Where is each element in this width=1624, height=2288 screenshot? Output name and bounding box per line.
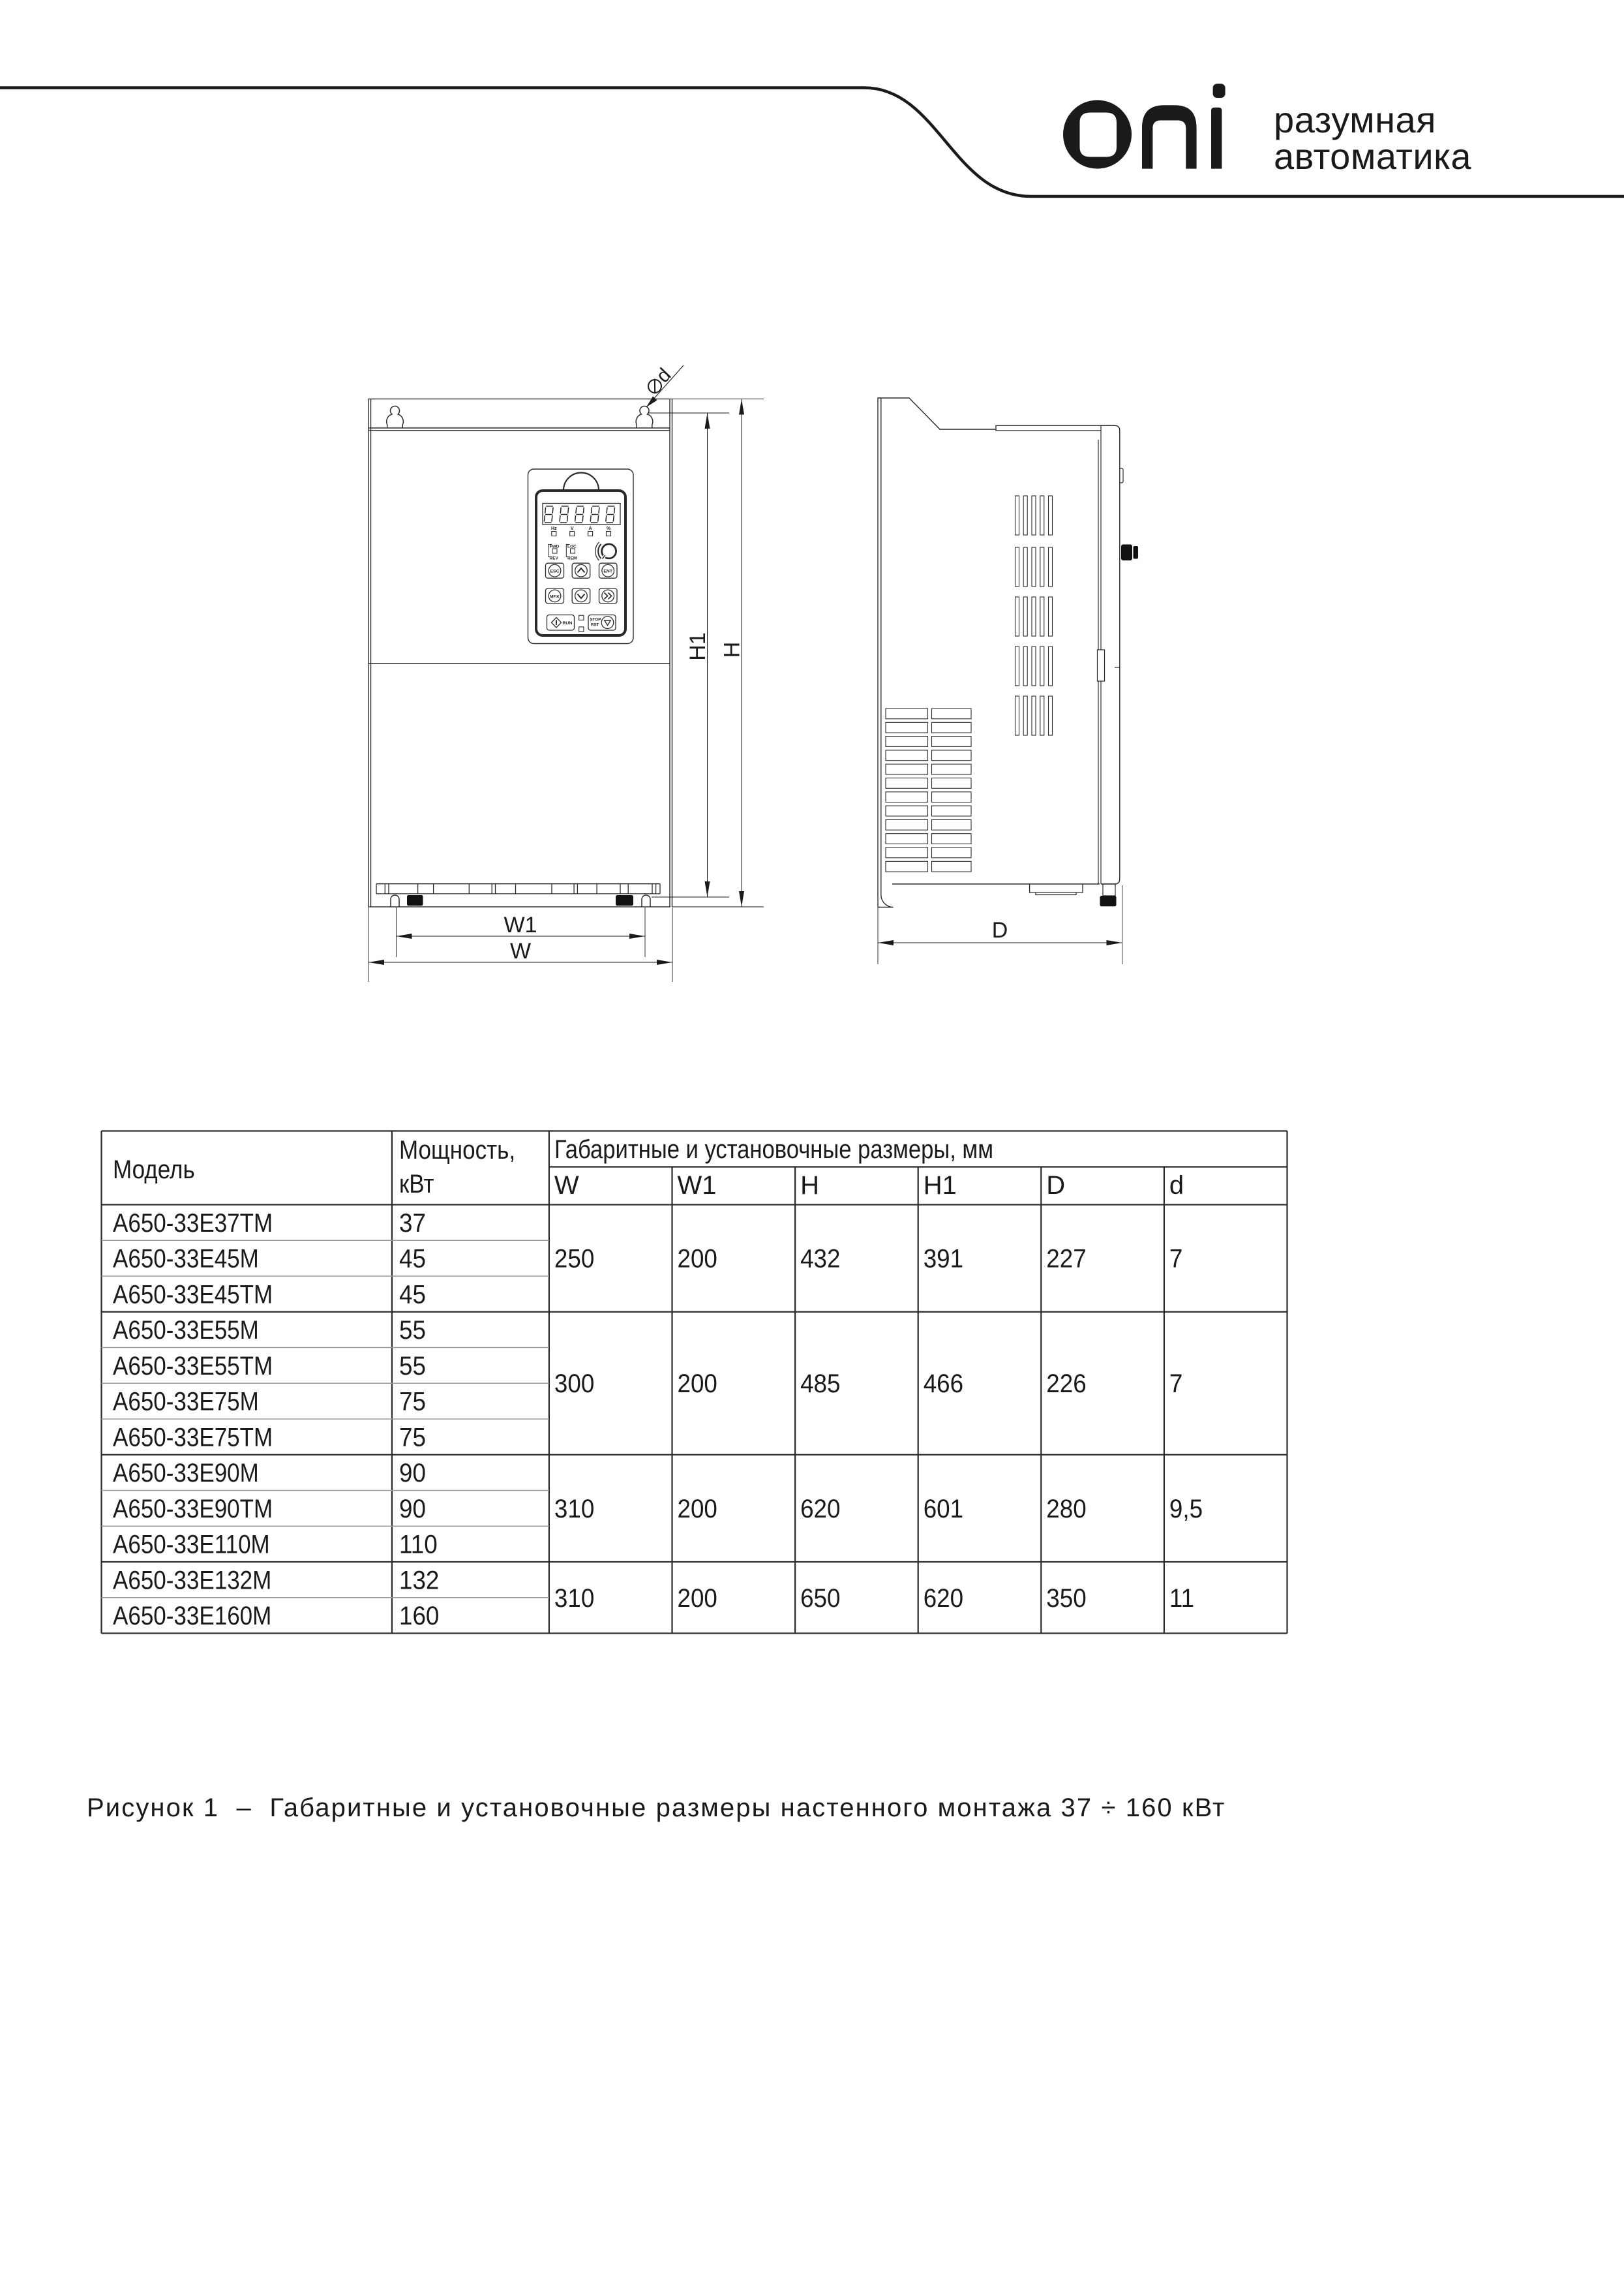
svg-text:160: 160 — [399, 1602, 439, 1630]
svg-text:FWD: FWD — [550, 545, 560, 549]
svg-text:%: % — [607, 526, 611, 531]
svg-text:280: 280 — [1046, 1495, 1086, 1523]
svg-text:H: H — [800, 1171, 819, 1200]
svg-text:автоматика: автоматика — [1274, 136, 1471, 177]
svg-text:Габаритные и установочные разм: Габаритные и установочные размеры, мм — [554, 1135, 993, 1164]
svg-text:601: 601 — [924, 1495, 963, 1523]
svg-text:9,5: 9,5 — [1169, 1495, 1203, 1523]
svg-text:432: 432 — [800, 1245, 840, 1274]
svg-text:110: 110 — [399, 1531, 438, 1559]
svg-text:650: 650 — [800, 1584, 840, 1613]
svg-text:ENT: ENT — [603, 570, 612, 574]
svg-text:A650-33E90TM: A650-33E90TM — [113, 1495, 273, 1523]
svg-text:200: 200 — [678, 1495, 717, 1523]
svg-text:7: 7 — [1169, 1369, 1183, 1398]
svg-text:RST: RST — [591, 623, 599, 628]
svg-text:226: 226 — [1046, 1369, 1086, 1398]
svg-text:A650-33E55M: A650-33E55M — [113, 1316, 259, 1345]
svg-text:90: 90 — [399, 1459, 426, 1487]
svg-text:кВт: кВт — [399, 1170, 434, 1198]
svg-text:H1: H1 — [924, 1171, 957, 1200]
svg-text:485: 485 — [800, 1369, 840, 1398]
svg-text:132: 132 — [399, 1566, 439, 1594]
svg-text:310: 310 — [554, 1495, 594, 1523]
svg-text:391: 391 — [924, 1245, 963, 1274]
svg-text:11: 11 — [1169, 1584, 1194, 1613]
svg-text:75: 75 — [399, 1388, 426, 1416]
svg-text:A650-33E37TM: A650-33E37TM — [113, 1209, 273, 1238]
svg-text:A650-33E160M: A650-33E160M — [113, 1602, 271, 1630]
svg-text:250: 250 — [554, 1245, 594, 1274]
svg-text:37: 37 — [399, 1209, 426, 1238]
svg-text:ESC: ESC — [550, 570, 560, 574]
svg-text:Модель: Модель — [113, 1155, 195, 1184]
svg-text:A650-33E55TM: A650-33E55TM — [113, 1352, 273, 1380]
svg-text:STOP: STOP — [590, 618, 601, 622]
svg-text:A650-33E45M: A650-33E45M — [113, 1245, 259, 1274]
svg-text:90: 90 — [399, 1495, 426, 1523]
svg-text:A: A — [589, 526, 592, 531]
svg-text:H: H — [720, 642, 745, 658]
svg-text:A650-33E75TM: A650-33E75TM — [113, 1423, 273, 1452]
svg-text:227: 227 — [1046, 1245, 1086, 1274]
svg-text:55: 55 — [399, 1352, 426, 1380]
svg-text:Hz: Hz — [551, 526, 557, 531]
svg-text:W1: W1 — [504, 913, 537, 938]
svg-text:LOC: LOC — [567, 545, 577, 549]
svg-text:разумная: разумная — [1274, 99, 1436, 140]
svg-text:A650-33E75M: A650-33E75M — [113, 1388, 259, 1416]
svg-text:W: W — [510, 939, 531, 964]
svg-text:H1: H1 — [685, 632, 710, 660]
svg-text:W: W — [554, 1171, 579, 1200]
svg-text:RUN: RUN — [563, 621, 573, 626]
svg-text:A650-33E90M: A650-33E90M — [113, 1459, 259, 1487]
svg-text:45: 45 — [399, 1280, 426, 1309]
svg-text:200: 200 — [678, 1369, 717, 1398]
svg-text:466: 466 — [924, 1369, 963, 1398]
svg-text:W1: W1 — [678, 1171, 717, 1200]
svg-text:D: D — [992, 918, 1008, 943]
svg-text:d: d — [1169, 1171, 1184, 1200]
svg-text:7: 7 — [1169, 1245, 1183, 1274]
svg-text:620: 620 — [924, 1584, 963, 1613]
svg-text:200: 200 — [678, 1245, 717, 1274]
svg-text:200: 200 — [678, 1584, 717, 1613]
svg-text:350: 350 — [1046, 1584, 1086, 1613]
svg-text:310: 310 — [554, 1584, 594, 1613]
svg-text:A650-33E132M: A650-33E132M — [113, 1566, 271, 1594]
svg-text:75: 75 — [399, 1423, 426, 1452]
svg-text:MF.K: MF.K — [550, 594, 560, 599]
svg-text:D: D — [1046, 1171, 1065, 1200]
svg-text:d: d — [652, 364, 675, 387]
svg-text:45: 45 — [399, 1245, 426, 1274]
svg-text:300: 300 — [554, 1369, 594, 1398]
svg-text:A650-33E110M: A650-33E110M — [113, 1531, 270, 1559]
svg-text:Мощность,: Мощность, — [399, 1136, 515, 1165]
svg-text:A650-33E45TM: A650-33E45TM — [113, 1280, 273, 1309]
svg-text:V: V — [571, 526, 574, 531]
svg-text:620: 620 — [800, 1495, 840, 1523]
svg-text:55: 55 — [399, 1316, 426, 1345]
